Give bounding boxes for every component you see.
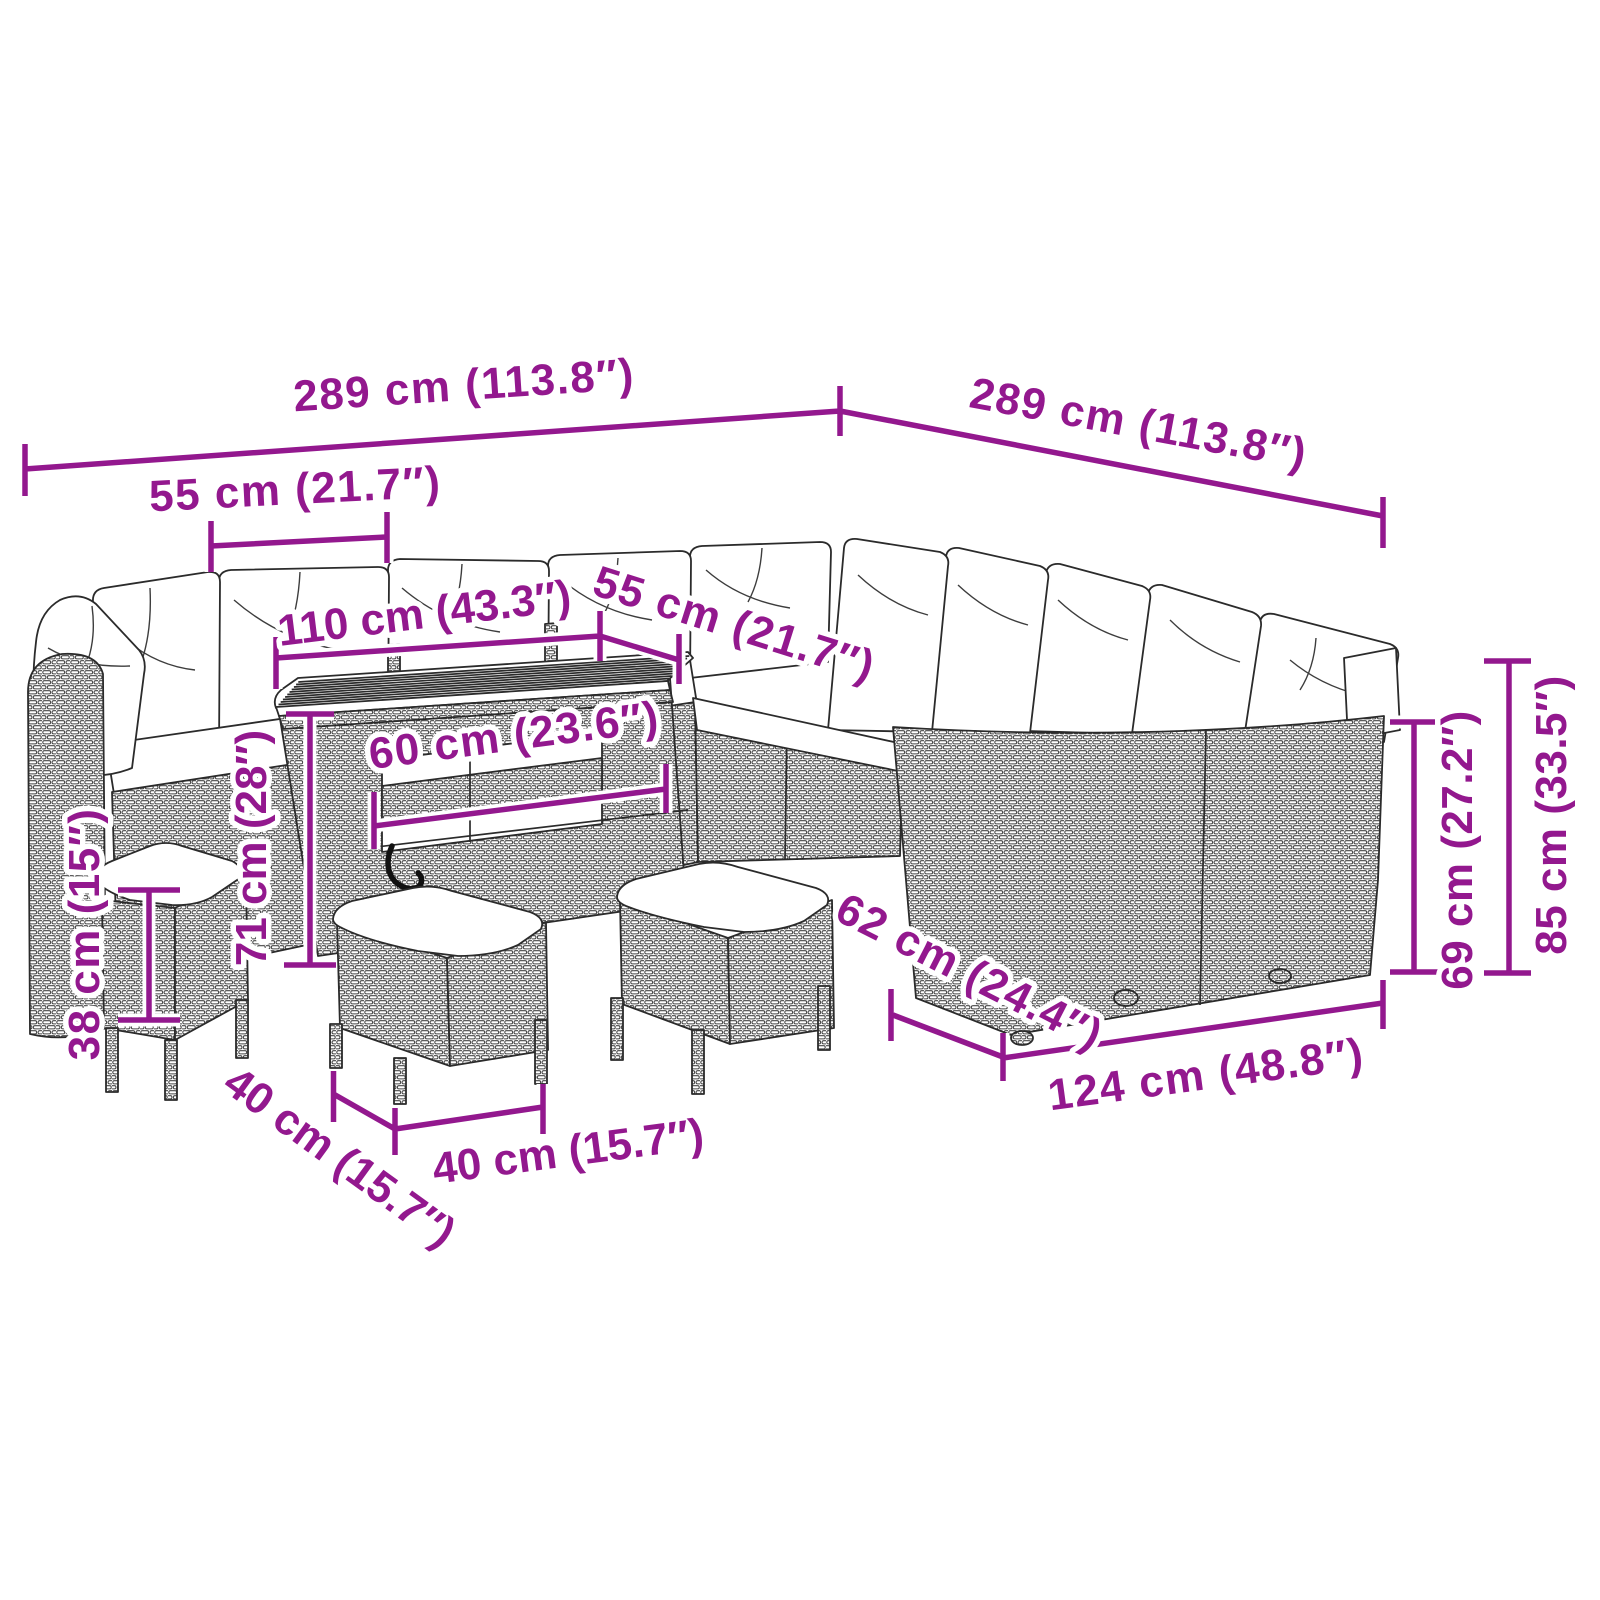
svg-text:289 cm (113.8″): 289 cm (113.8″)	[292, 350, 637, 422]
svg-text:69 cm (27.2″): 69 cm (27.2″)	[1433, 710, 1482, 990]
svg-text:55 cm (21.7″): 55 cm (21.7″)	[148, 458, 443, 522]
svg-text:71 cm (28″): 71 cm (28″)	[227, 730, 276, 966]
svg-text:38 cm (15″): 38 cm (15″)	[60, 808, 109, 1061]
svg-text:85 cm (33.5″): 85 cm (33.5″)	[1527, 675, 1576, 955]
